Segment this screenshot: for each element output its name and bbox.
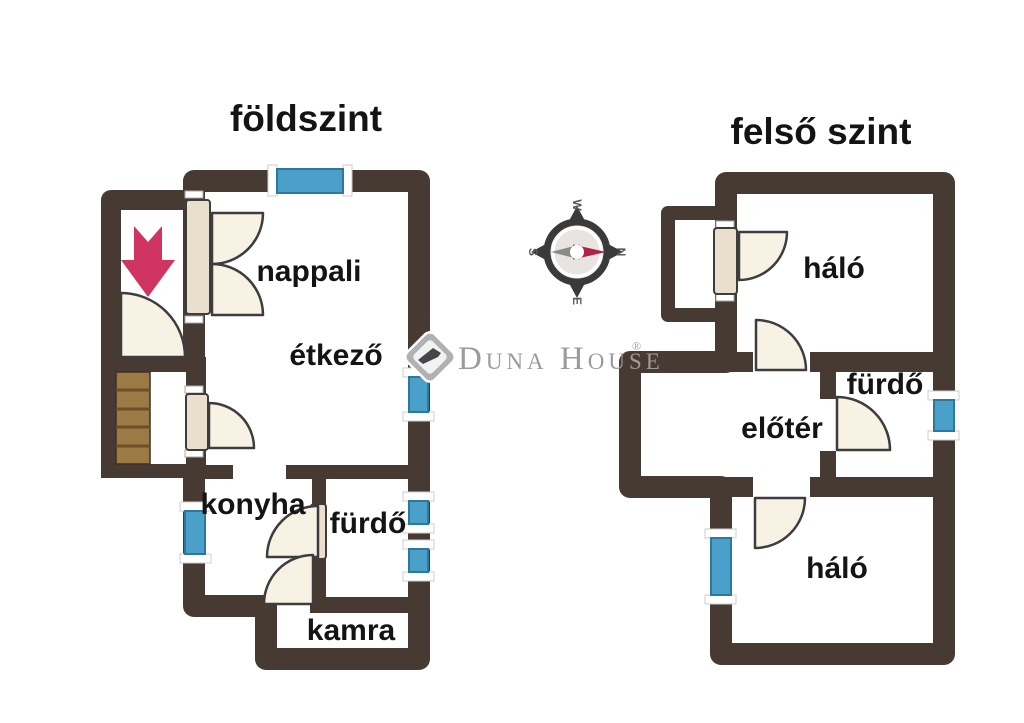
room-label-halo-top: háló — [803, 252, 865, 285]
window — [711, 538, 731, 595]
compass-label-south: S — [526, 248, 540, 256]
gf-stairs — [116, 372, 186, 464]
upper-floor-plan: felső szint háló előtér fürdő háló — [630, 111, 959, 654]
door-swing — [264, 555, 313, 604]
door-swing — [212, 264, 263, 315]
floorplan-page: földszint nappali étkező konyha fürdő ka… — [0, 0, 1024, 723]
window — [409, 549, 428, 572]
door-swing — [837, 397, 890, 450]
upper-floor-title: felső szint — [731, 111, 912, 152]
door-panel — [714, 228, 737, 294]
room-label-eloter: előtér — [741, 412, 823, 445]
door-swing — [209, 403, 254, 448]
door-swing — [739, 232, 787, 280]
wall-segment — [820, 372, 836, 399]
floorplan-canvas: földszint nappali étkező konyha fürdő ka… — [0, 0, 1024, 723]
uf-balcony-walls — [668, 213, 715, 315]
wall-segment — [820, 451, 836, 477]
door-swing — [212, 213, 263, 264]
door-swing — [121, 293, 185, 357]
room-label-furdo-upper: fürdő — [847, 368, 924, 401]
door-swing — [756, 320, 806, 370]
wall-segment — [286, 465, 416, 479]
window — [934, 400, 954, 431]
window — [409, 377, 428, 412]
stairs-treads — [116, 372, 150, 464]
wall-segment — [710, 477, 753, 497]
stairs-landing — [150, 372, 186, 464]
compass-label-north: N — [614, 248, 628, 257]
wall-segment — [668, 213, 715, 315]
watermark: Duna House ® — [402, 329, 663, 384]
wall-segment — [183, 465, 233, 479]
ground-floor-plan: földszint nappali étkező konyha fürdő ka… — [101, 98, 434, 659]
room-label-konyha: konyha — [200, 488, 305, 521]
window — [277, 169, 343, 193]
compass-rose: W N E S — [526, 199, 628, 305]
door-panel — [186, 394, 208, 450]
door-panel — [186, 200, 210, 314]
door-swing — [755, 498, 805, 548]
room-label-kamra: kamra — [307, 614, 396, 647]
room-label-halo-bottom: háló — [806, 552, 868, 585]
room-label-furdo-ground: fürdő — [330, 507, 407, 540]
compass-label-east: E — [570, 297, 584, 305]
window — [409, 501, 428, 524]
ground-floor-title: földszint — [230, 98, 382, 139]
entrance-arrow — [121, 226, 175, 297]
compass-hub — [570, 245, 584, 259]
watermark-registered-mark: ® — [632, 339, 641, 353]
room-label-nappali: nappali — [256, 255, 361, 288]
room-label-etkezo: étkező — [289, 339, 382, 372]
wall-segment — [310, 597, 415, 613]
compass-label-west: W — [570, 199, 584, 211]
wall-segment — [810, 477, 933, 497]
wall-segment — [724, 352, 753, 372]
